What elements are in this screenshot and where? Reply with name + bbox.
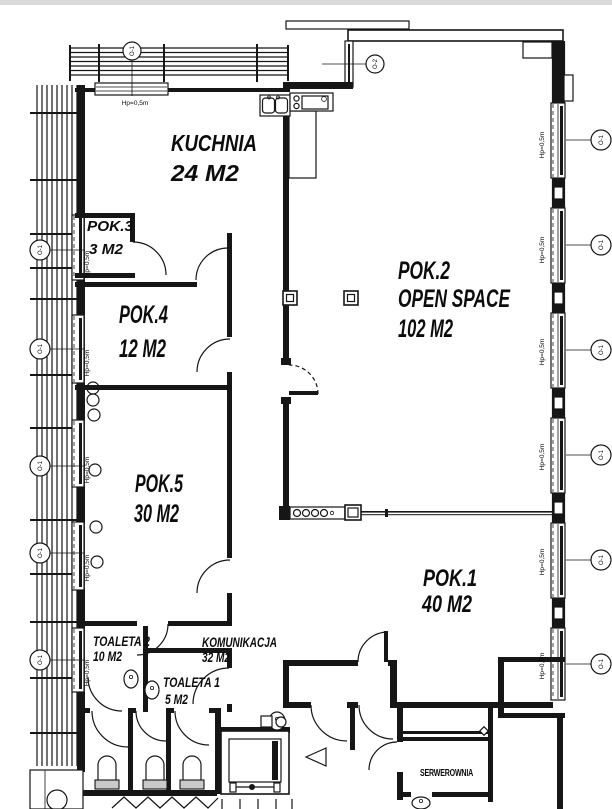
sill-label: Hp=0,5m [122, 100, 149, 107]
door-arc-kitchen-corridor [196, 248, 228, 280]
washbasin [412, 797, 430, 809]
sill-label: Hp=0,5m [539, 339, 546, 366]
door-arc-vestibule [359, 705, 393, 739]
label-pok2-subtitle: OPEN SPACE [398, 285, 511, 313]
label-serwerownia-name: SERWEROWNIA [420, 768, 473, 779]
wc-symbol [180, 756, 204, 789]
window-tag-label: O-1 [38, 343, 44, 354]
window-module [72, 215, 84, 280]
drain-symbol [276, 717, 286, 727]
label-komunikacja-name: KOMUNIKACJA [202, 634, 277, 650]
pilaster [564, 75, 573, 101]
label-pok2-area: 102 M2 [398, 315, 453, 343]
window-module [551, 103, 565, 178]
window-tag-label: O-1 [38, 460, 44, 471]
direction-triangle [306, 748, 326, 766]
window-tag-label: O-1 [599, 554, 605, 565]
window-tag-label: O-1 [599, 239, 605, 250]
washbasin [145, 681, 159, 699]
door-arc-pok2 [289, 365, 318, 394]
window-tag-label: O-1 [599, 134, 605, 145]
window-tag-label: O-1 [130, 45, 136, 56]
top-wall-strip [286, 21, 409, 29]
window-tags: O-1 O-1 O-1 O-1 O-1 O-1 O-2 O-1 O-1 O-1 … [30, 42, 611, 674]
sill-label: Hp=0,5m [84, 350, 91, 377]
door-arc-pok5 [197, 560, 230, 593]
window-tag-label: O-1 [38, 547, 44, 558]
wall-pier [77, 85, 85, 215]
window-module [72, 420, 84, 487]
wc-symbol [95, 756, 119, 789]
door-leaf-pok1 [384, 631, 388, 662]
sill-label: Hp=0,5m [84, 660, 91, 687]
glazed-partition [279, 505, 553, 520]
label-kuchnia-name: KUCHNIA [171, 130, 257, 156]
sill-label: Hp=0,5m [539, 237, 546, 264]
door-arc-washroom [311, 705, 347, 741]
window-module [551, 523, 565, 598]
window-module [72, 522, 84, 590]
label-kuchnia-area: 24 M2 [170, 160, 239, 186]
label-pok5-name: POK.5 [135, 470, 184, 498]
sill-label: Hp=0,5m [539, 132, 546, 159]
sill-detail [95, 83, 168, 95]
column [344, 291, 358, 305]
window-tag-label: O-1 [599, 449, 605, 460]
sill-label: Hp=0,5m [539, 653, 546, 680]
radiator [523, 42, 552, 58]
door-arc-pok1 [358, 632, 388, 662]
door-leaf-pok2 [289, 391, 318, 395]
label-pok3-area: 3 M2 [89, 242, 123, 258]
shaft-symbol [261, 716, 272, 727]
sill-label: Hp=0,5m [539, 444, 546, 471]
door-arc-stall-2 [136, 711, 166, 741]
door-arc-pok4 [197, 339, 230, 372]
door-arc-serwerownia [369, 742, 397, 770]
window-tag-label: O-1 [599, 344, 605, 355]
window-module [551, 628, 565, 700]
wc-symbol [143, 756, 167, 789]
door-arc-pok3 [133, 242, 166, 275]
column [283, 291, 297, 305]
sill-label: Hp=0,5m [84, 555, 91, 582]
label-toaleta2-area: 10 M2 [93, 648, 122, 664]
label-toaleta1-area: 5 M2 [165, 691, 188, 707]
partition-column [345, 505, 361, 520]
window-tag-label: O-1 [38, 654, 44, 665]
elevator-door-marker [249, 784, 255, 790]
sill-label: Hp=0,5m [84, 457, 91, 484]
washbasin [124, 670, 138, 688]
columns [283, 291, 358, 305]
label-pok1-name: POK.1 [423, 565, 477, 592]
window-tag-label: O-2 [373, 58, 379, 69]
label-pok2-name: POK.2 [398, 257, 450, 285]
label-pok4-area: 12 M2 [119, 335, 166, 363]
duct-shaft [289, 111, 316, 178]
window-tag-label: O-1 [599, 658, 605, 669]
label-pok4-name: POK.4 [119, 301, 168, 329]
label-pok5-area: 30 M2 [134, 500, 179, 528]
door-arc-stall-1 [92, 711, 128, 747]
label-pok1-area: 40 M2 [421, 591, 472, 618]
label-pok3-name: POK.3 [87, 219, 133, 235]
sill-label: Hp=0,5m [539, 549, 546, 576]
door-arc-stall-3 [175, 711, 209, 745]
elevator [221, 731, 289, 794]
window-tag-label: O-1 [38, 244, 44, 255]
window-module [551, 208, 565, 283]
floor-plan: O-1 O-1 O-1 O-1 O-1 O-1 O-2 O-1 O-1 O-1 … [0, 0, 612, 809]
top-window-band [70, 44, 290, 95]
mobile-wall-assembly [290, 507, 345, 519]
interior-walls [75, 111, 565, 809]
scan-artifact-strip [0, 0, 612, 5]
kitchen-right-top-wall [283, 82, 353, 89]
label-toaleta1-name: TOALETA 1 [163, 674, 220, 690]
label-komunikacja-area: 32 M2 [202, 649, 230, 665]
label-toaleta2-name: TOALETA 2 [93, 633, 150, 649]
window-module [551, 313, 565, 388]
top-wall [348, 30, 563, 41]
door-arc-toaleta2-inner [88, 677, 122, 711]
floor-plan-drawing: O-1 O-1 O-1 O-1 O-1 O-1 O-2 O-1 O-1 O-1 … [0, 0, 612, 809]
window-module [551, 418, 565, 493]
